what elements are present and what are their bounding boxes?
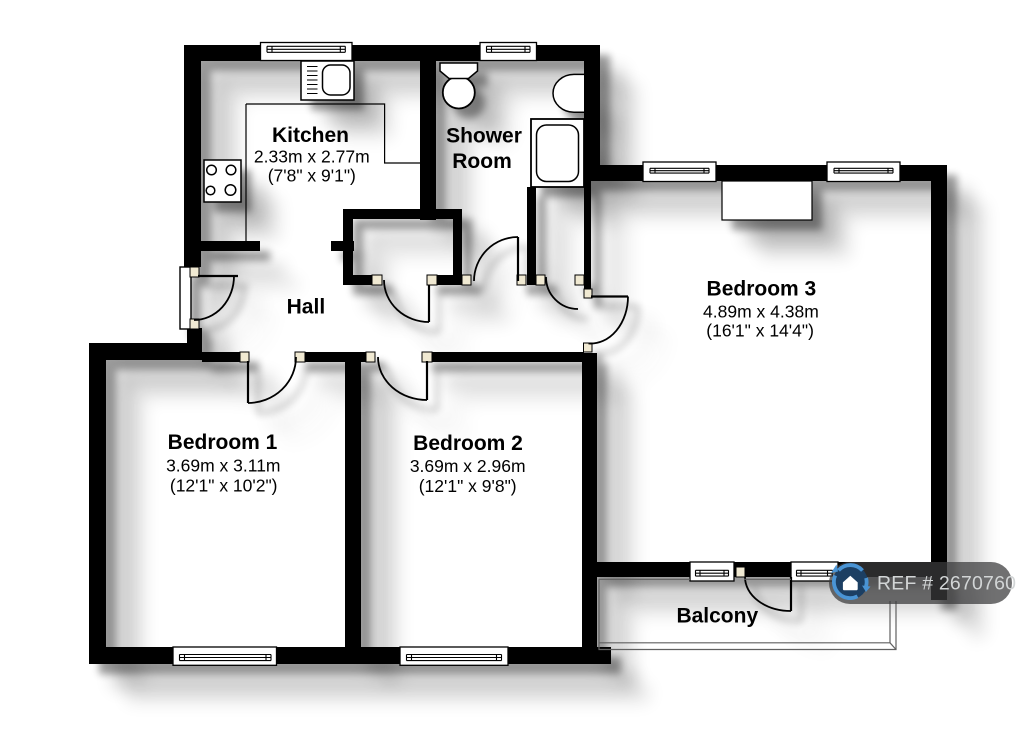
svg-text:(12'1" x 9'8"): (12'1" x 9'8") bbox=[419, 476, 517, 496]
svg-text:4.89m x 4.38m: 4.89m x 4.38m bbox=[703, 301, 819, 321]
svg-text:Balcony: Balcony bbox=[676, 605, 758, 628]
svg-text:2.33m x 2.77m: 2.33m x 2.77m bbox=[254, 147, 370, 167]
svg-text:(16'1" x 14'4"): (16'1" x 14'4") bbox=[706, 321, 814, 341]
svg-text:3.69m x 3.11m: 3.69m x 3.11m bbox=[166, 456, 280, 476]
svg-text:3.69m x 2.96m: 3.69m x 2.96m bbox=[410, 456, 526, 476]
svg-text:(7'8" x 9'1"): (7'8" x 9'1") bbox=[268, 166, 356, 186]
svg-text:Shower: Shower bbox=[446, 125, 522, 148]
svg-text:(12'1" x 10'2"): (12'1" x 10'2") bbox=[170, 476, 278, 496]
svg-text:REF # 2670760: REF # 2670760 bbox=[877, 573, 1016, 595]
svg-text:Bedroom 1: Bedroom 1 bbox=[168, 431, 278, 454]
svg-text:Room: Room bbox=[452, 150, 512, 173]
svg-text:Bedroom 3: Bedroom 3 bbox=[707, 278, 817, 301]
svg-text:Bedroom 2: Bedroom 2 bbox=[413, 432, 523, 455]
svg-text:Kitchen: Kitchen bbox=[272, 124, 349, 147]
svg-text:Hall: Hall bbox=[287, 296, 326, 319]
